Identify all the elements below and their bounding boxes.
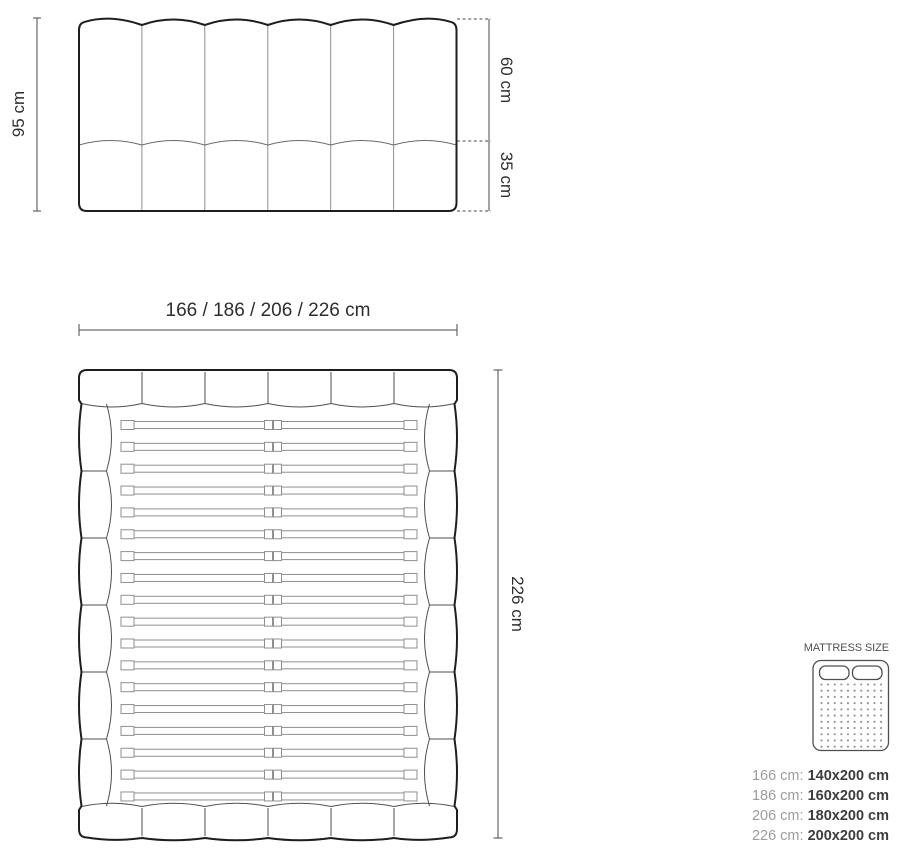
headboard-dimension-lines (33, 18, 491, 211)
mattress-size-value: 140x200 cm (808, 768, 889, 784)
mattress-size-value: 160x200 cm (808, 788, 889, 804)
headboard-lower-height-label: 35 cm (496, 130, 516, 220)
mattress-size-value: 180x200 cm (808, 808, 889, 824)
left-rail-inner-edge (107, 404, 112, 806)
top-bar-lower-seam (82, 404, 455, 408)
frame-width-value: 226 cm: (752, 828, 804, 844)
frame-width-value: 166 cm: (752, 768, 804, 784)
mattress-icon (813, 661, 889, 751)
mattress-size-row: 186 cm: 160x200 cm (752, 786, 889, 806)
bed-top-view (79, 370, 457, 840)
bed-slats (121, 421, 417, 801)
mattress-size-row: 206 cm: 180x200 cm (752, 806, 889, 826)
bed-width-label: 166 / 186 / 206 / 226 cm (118, 300, 418, 322)
mattress-icon-body (813, 661, 889, 751)
bed-length-label: 226 cm (507, 559, 527, 649)
right-rail-inner-edge (425, 404, 430, 806)
mattress-icon-pillow-right (853, 666, 883, 680)
mattress-size-table: 166 cm: 140x200 cm 186 cm: 160x200 cm 20… (752, 766, 889, 846)
frame-width-value: 206 cm: (752, 808, 804, 824)
headboard-upper-height-label: 60 cm (496, 35, 516, 125)
headboard-panel-dividers (142, 26, 394, 210)
mattress-icon-tuft-dots (820, 683, 882, 747)
footer-bar-upper-seam (82, 803, 455, 806)
mattress-size-row: 226 cm: 200x200 cm (752, 826, 889, 846)
frame-width-value: 186 cm: (752, 788, 804, 804)
headboard-front-view (79, 19, 457, 211)
mattress-size-value: 200x200 cm (808, 828, 889, 844)
mattress-icon-pillow-left (820, 666, 850, 680)
diagram-line-art (0, 0, 900, 860)
bed-dimensions-diagram: 95 cm 60 cm 35 cm 166 / 186 / 206 / 226 … (0, 0, 900, 860)
mattress-size-row: 166 cm: 140x200 cm (752, 766, 889, 786)
mattress-size-title: MATTRESS SIZE (804, 642, 889, 654)
headboard-height-label: 95 cm (9, 69, 29, 159)
